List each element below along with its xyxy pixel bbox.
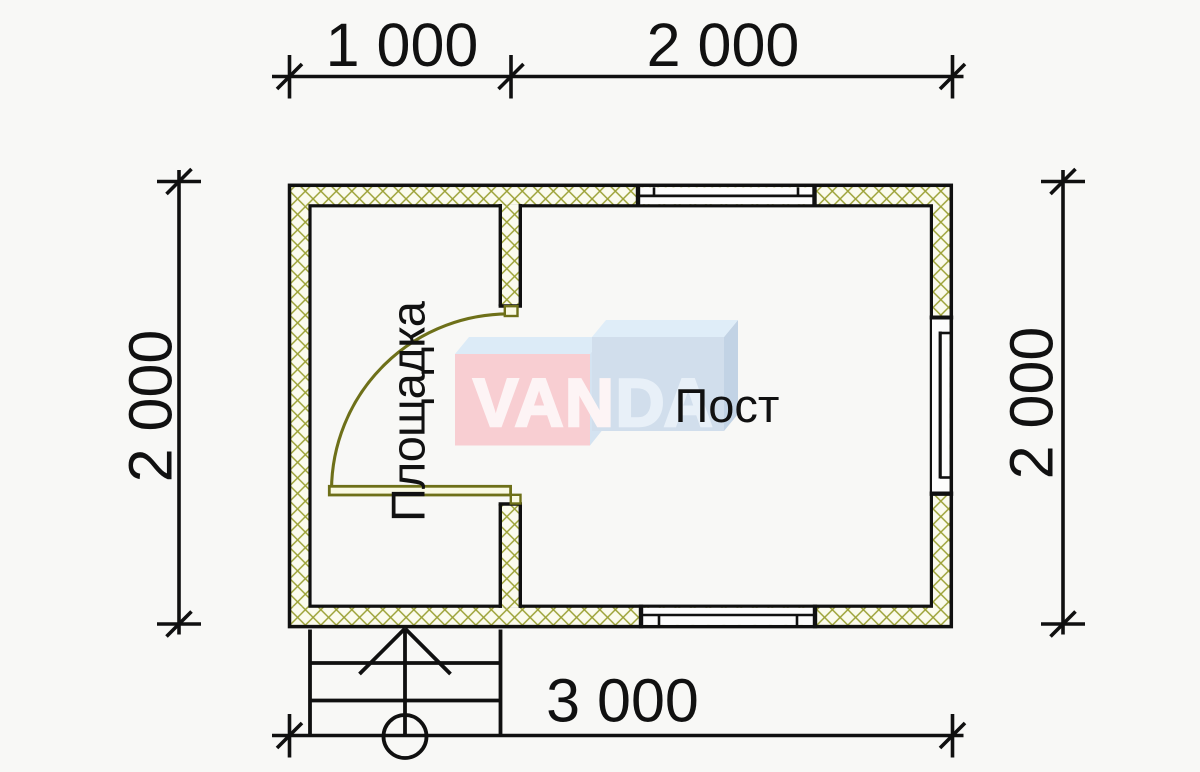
- svg-text:Площадка: Площадка: [382, 300, 435, 522]
- svg-text:2 000: 2 000: [998, 327, 1066, 480]
- svg-text:1 000: 1 000: [326, 11, 479, 79]
- svg-text:2 000: 2 000: [647, 11, 800, 79]
- svg-text:2 000: 2 000: [117, 330, 185, 483]
- svg-text:Пост: Пост: [675, 379, 780, 432]
- svg-text:VAN: VAN: [473, 365, 615, 441]
- svg-text:3 000: 3 000: [546, 667, 699, 735]
